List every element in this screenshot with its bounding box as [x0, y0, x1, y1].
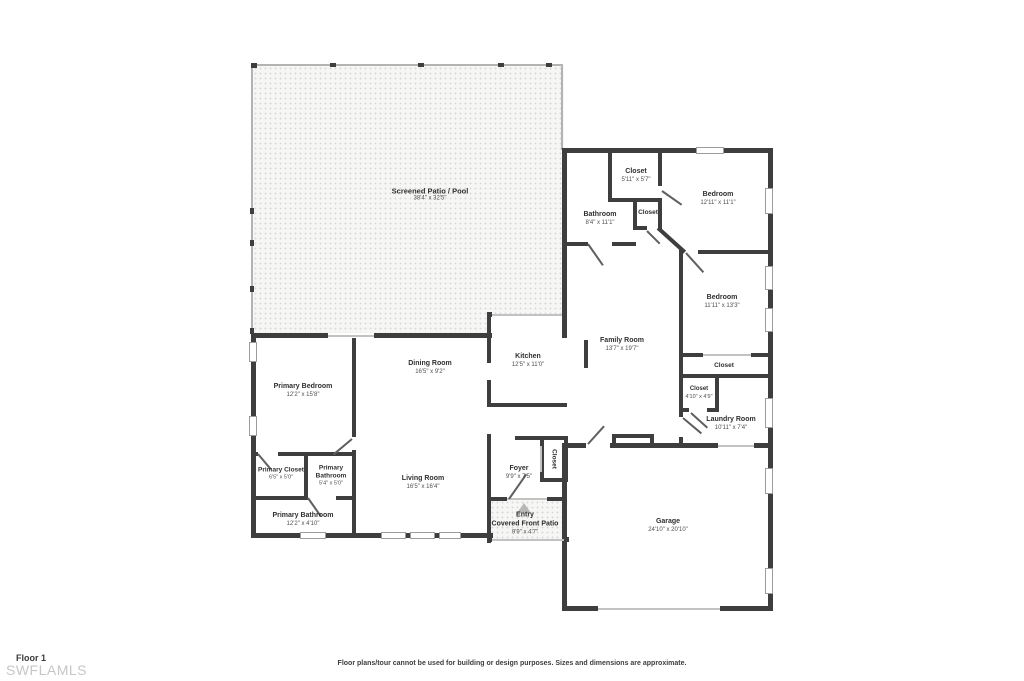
patio-post: [251, 63, 257, 68]
window: [765, 568, 773, 594]
room-label-living-room: Living Room 16'5" x 16'4": [402, 475, 444, 491]
patio-post: [330, 63, 336, 67]
patio-screen-wall: [251, 64, 253, 335]
wall: [612, 434, 654, 438]
wall: [707, 408, 719, 412]
sliding-door: [487, 314, 567, 316]
patio-post: [418, 63, 424, 67]
door-opening: [588, 242, 612, 247]
window: [410, 532, 435, 539]
window: [696, 147, 724, 154]
closet-door: [540, 446, 542, 472]
door-swing: [661, 190, 682, 205]
wall: [679, 374, 772, 378]
wall: [251, 496, 356, 500]
front-door-opening: [507, 498, 547, 500]
window: [765, 398, 773, 428]
patio-post: [546, 63, 552, 67]
room-dims: 9'9" x 4'7": [492, 529, 559, 537]
room-label-primary-bathroom-small: Primary Bathroom 5'4" x 5'0": [308, 464, 354, 487]
room-name: Primary Bedroom: [274, 383, 333, 392]
window: [765, 188, 773, 214]
room-dims: 12'2" x 4'10": [272, 521, 333, 529]
wall: [679, 408, 689, 412]
room-label-bedroom-right: Bedroom 11'11" x 13'3": [704, 294, 739, 310]
window: [381, 532, 406, 539]
room-dims: 16'5" x 16'4": [402, 484, 444, 492]
room-dims: 12'11" x 11'1": [700, 200, 735, 208]
window: [765, 308, 773, 332]
wall: [584, 340, 588, 368]
room-name: Primary Closet: [258, 467, 304, 475]
patio-post: [250, 286, 254, 292]
door-opening: [586, 443, 610, 448]
room-name: Bedroom: [704, 294, 739, 303]
garage-door: [598, 608, 720, 610]
floorplan-canvas: Screened Patio / Pool 38'4" x 32'5" Clos…: [0, 0, 1024, 681]
room-label-bedroom-top: Bedroom 12'11" x 11'1": [700, 191, 735, 207]
room-name: Family Room: [600, 337, 644, 346]
wall: [547, 497, 567, 501]
patio-post: [487, 537, 492, 542]
room-label-screened-patio-pool: Screened Patio / Pool 38'4" x 32'5": [392, 187, 469, 204]
room-name: Laundry Room: [706, 416, 755, 425]
slider-cap: [562, 312, 567, 317]
door-swing: [646, 230, 660, 244]
room-label-closet-hall: Closet: [638, 209, 658, 217]
closet-slider-door: [703, 354, 751, 356]
room-name: Bathroom: [583, 211, 616, 220]
window: [439, 532, 461, 539]
room-dims: 5'11" x 5'7": [621, 177, 650, 185]
wall: [487, 403, 567, 407]
door-swing: [685, 252, 704, 273]
wall: [540, 478, 568, 482]
sliding-door: [718, 445, 754, 447]
room-dims: 12'2" x 15'8": [274, 392, 333, 400]
room-name: Closet: [621, 168, 650, 177]
room-name: Closet: [551, 449, 558, 469]
wall: [715, 374, 719, 412]
room-label-closet-top: Closet 5'11" x 5'7": [621, 168, 650, 184]
room-label-family-room: Family Room 13'7" x 19'7": [600, 337, 644, 353]
disclaimer: Floor plans/tour cannot be used for buil…: [338, 660, 687, 667]
wall: [679, 353, 703, 357]
patio-post: [498, 63, 504, 67]
patio-screen-wall: [561, 64, 563, 150]
room-dims: 24'10" x 20'10": [648, 527, 688, 535]
wall: [562, 242, 588, 246]
room-name: Primary Bathroom: [308, 464, 354, 480]
wall: [352, 450, 356, 538]
door-opening: [308, 496, 336, 500]
patio-screen-wall: [251, 64, 563, 66]
wall: [562, 148, 773, 153]
wall: [608, 148, 612, 202]
window: [765, 266, 773, 290]
wall: [487, 434, 491, 543]
door-swing: [587, 425, 605, 444]
room-name: Dining Room: [408, 360, 452, 369]
room-dims: 10'11" x 7'4": [706, 425, 755, 433]
wall: [564, 436, 568, 482]
room-name: Kitchen: [512, 353, 544, 362]
room-name-line2: Covered Front Patio: [492, 520, 559, 529]
screened-patio-surface: [488, 66, 564, 314]
patio-post: [250, 240, 254, 246]
room-dims: 13'7" x 19'7": [600, 346, 644, 354]
window: [249, 342, 257, 362]
room-label-bathroom: Bathroom 8'4" x 11'1": [583, 211, 616, 227]
room-name: Entry: [492, 512, 559, 521]
slider-cap: [487, 312, 492, 317]
room-dims: 12'5" x 11'0": [512, 362, 544, 370]
room-name: Primary Bathroom: [272, 512, 333, 521]
room-dims: 16'5" x 9'2": [408, 369, 452, 377]
patio-post: [564, 537, 569, 542]
room-name: Living Room: [402, 475, 444, 484]
wall: [658, 148, 662, 186]
room-label-primary-bedroom: Primary Bedroom 12'2" x 15'8": [274, 383, 333, 399]
wall: [679, 437, 683, 447]
window: [249, 416, 257, 436]
wall: [612, 242, 636, 246]
room-label-kitchen: Kitchen 12'5" x 11'0": [512, 353, 544, 369]
wall: [768, 148, 773, 611]
room-dims: 4'10" x 4'9": [685, 393, 712, 400]
room-label-foyer: Foyer 9'9" x 7'5": [506, 465, 532, 481]
room-dims: 6'5" x 5'0": [258, 475, 304, 482]
wall: [698, 250, 772, 254]
room-name: Screened Patio / Pool: [392, 187, 469, 196]
room-name: Foyer: [506, 465, 532, 474]
wall: [352, 333, 356, 437]
wall-diagonal: [657, 227, 686, 254]
room-label-foyer-closet: Closet: [551, 449, 558, 469]
wall: [487, 337, 491, 363]
window: [300, 532, 326, 539]
room-name: Closet: [685, 386, 712, 394]
room-name: Bedroom: [700, 191, 735, 200]
room-label-garage: Garage 24'10" x 20'10": [648, 518, 688, 534]
wall: [650, 434, 654, 447]
room-name: Garage: [648, 518, 688, 527]
room-label-laundry-room: Laundry Room 10'11" x 7'4": [706, 416, 755, 432]
room-dims: 5'4" x 5'0": [308, 481, 354, 488]
sliding-door: [328, 335, 374, 337]
wall: [679, 250, 683, 417]
room-label-dining-room: Dining Room 16'5" x 9'2": [408, 360, 452, 376]
room-dims: 11'11" x 13'3": [704, 303, 739, 311]
watermark: SWFLAMLS: [6, 662, 87, 678]
room-dims: 9'9" x 7'5": [506, 474, 532, 482]
room-label-primary-bathroom: Primary Bathroom 12'2" x 4'10": [272, 512, 333, 528]
room-dims: 38'4" x 32'5": [392, 196, 469, 204]
room-label-primary-closet: Primary Closet 6'5" x 5'0": [258, 467, 304, 482]
patio-post: [250, 208, 254, 214]
room-dims: 8'4" x 11'1": [583, 220, 616, 228]
room-name: Closet: [714, 362, 734, 370]
room-label-closet-wide: Closet: [714, 362, 734, 370]
wall: [658, 198, 662, 230]
wall: [633, 226, 647, 230]
room-name: Closet: [638, 209, 658, 217]
wall: [487, 497, 507, 501]
wall: [751, 353, 772, 357]
window: [765, 468, 773, 494]
room-label-entry: Entry Covered Front Patio 9'9" x 4'7": [492, 512, 559, 537]
entry-patio-edge: [487, 539, 569, 541]
room-label-closet-laundry: Closet 4'10" x 4'9": [685, 386, 712, 400]
